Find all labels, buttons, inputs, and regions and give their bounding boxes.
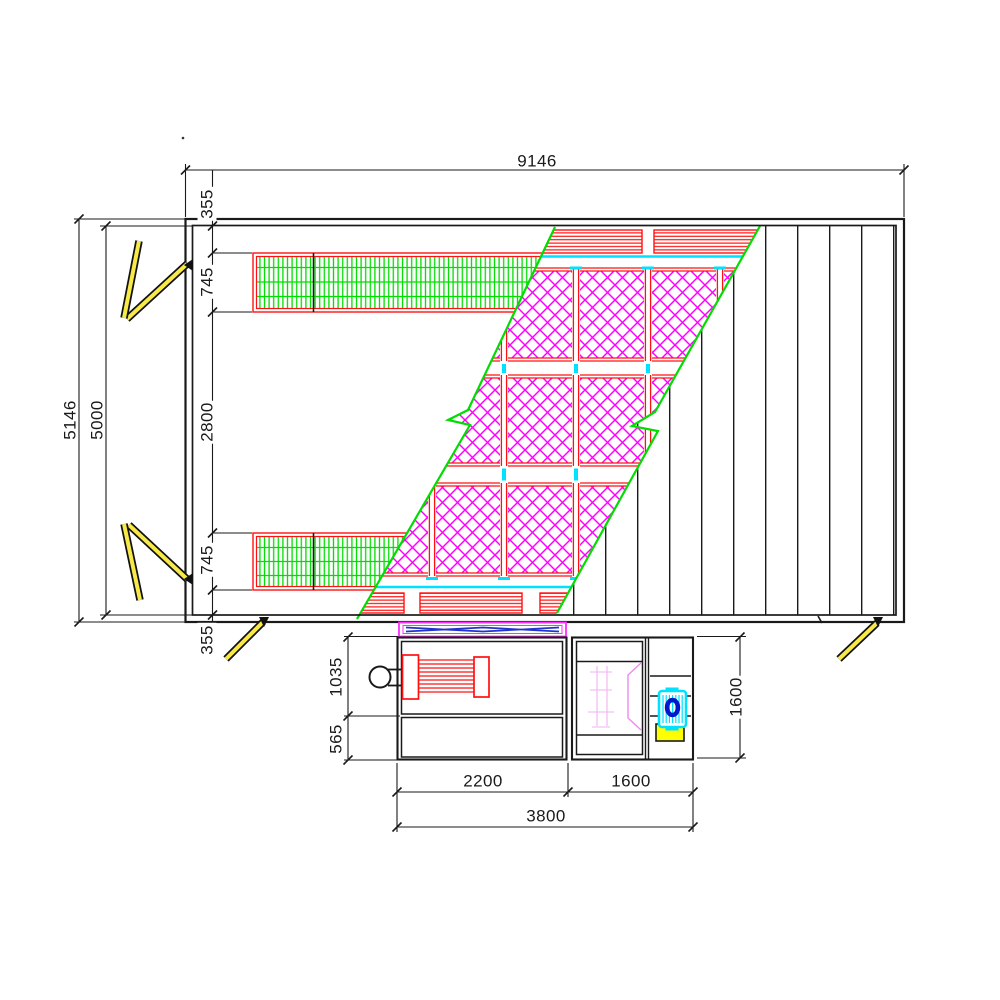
stray-dot [182,137,185,140]
dim-edge-offset-bottom: 355 [198,623,217,657]
pump [659,688,686,731]
dim-center-platform: 2800 [198,400,217,443]
plan-canvas [0,0,1000,1000]
air-handling-unit [370,623,694,761]
dim-edge-offset-top: 355 [198,187,217,221]
exhaust-strip-bottom [350,593,576,613]
dim-grille-bottom: 745 [198,543,217,577]
fan-unit-box [398,638,567,760]
dim-outer-depth: 5146 [62,400,79,439]
door-left-top [124,241,193,319]
dim-unit-total-width: 3800 [526,808,565,825]
fan-motor [403,655,490,699]
grille-bottom [253,533,410,590]
door-left-bottom [124,524,193,600]
damper-connection [399,623,566,637]
burner-assembly [588,663,641,730]
spray-booth-plan: 9146 355 745 2800 745 355 5146 5000 1035… [0,0,1000,1000]
grille-top [253,253,548,312]
exhaust-strip-top [530,230,760,253]
dim-fan-section-depth: 1035 [328,657,345,696]
dim-fan-unit-width: 2200 [463,773,502,790]
door-bottom-left [226,617,269,659]
door-bottom-right [839,617,883,659]
dim-burner-unit-width: 1600 [611,773,650,790]
dim-unit-depth: 1600 [727,675,746,718]
dim-grille-top: 745 [198,265,217,299]
dim-overall-width: 9146 [517,153,556,170]
dim-lower-section-depth: 565 [328,724,345,754]
dim-inner-depth: 5000 [89,400,106,439]
